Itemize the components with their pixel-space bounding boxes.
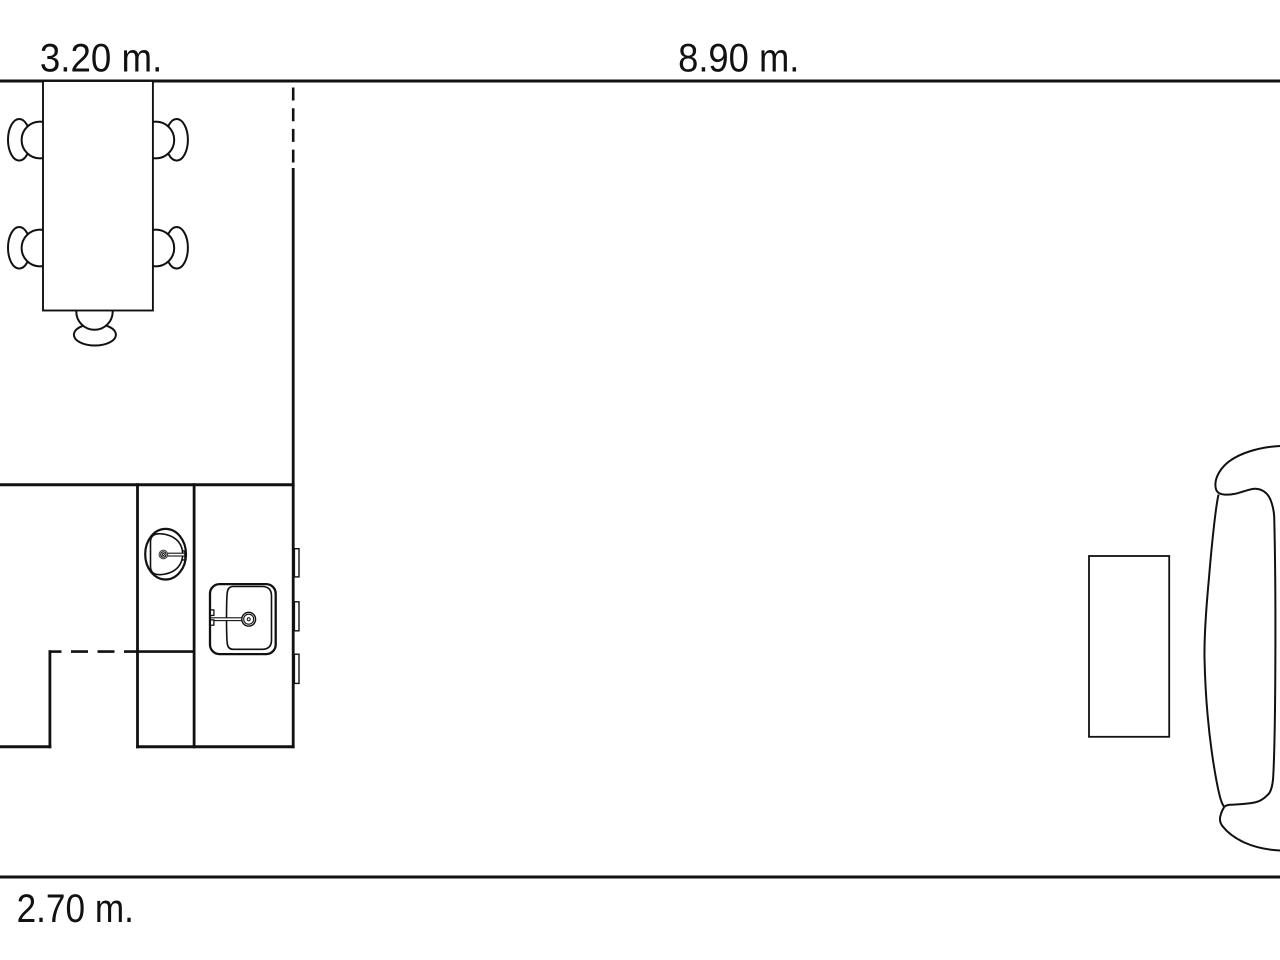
svg-text:3.20 m.: 3.20 m. [40,37,162,81]
svg-text:2.70 m.: 2.70 m. [17,887,134,931]
svg-text:8.90 m.: 8.90 m. [678,37,799,81]
